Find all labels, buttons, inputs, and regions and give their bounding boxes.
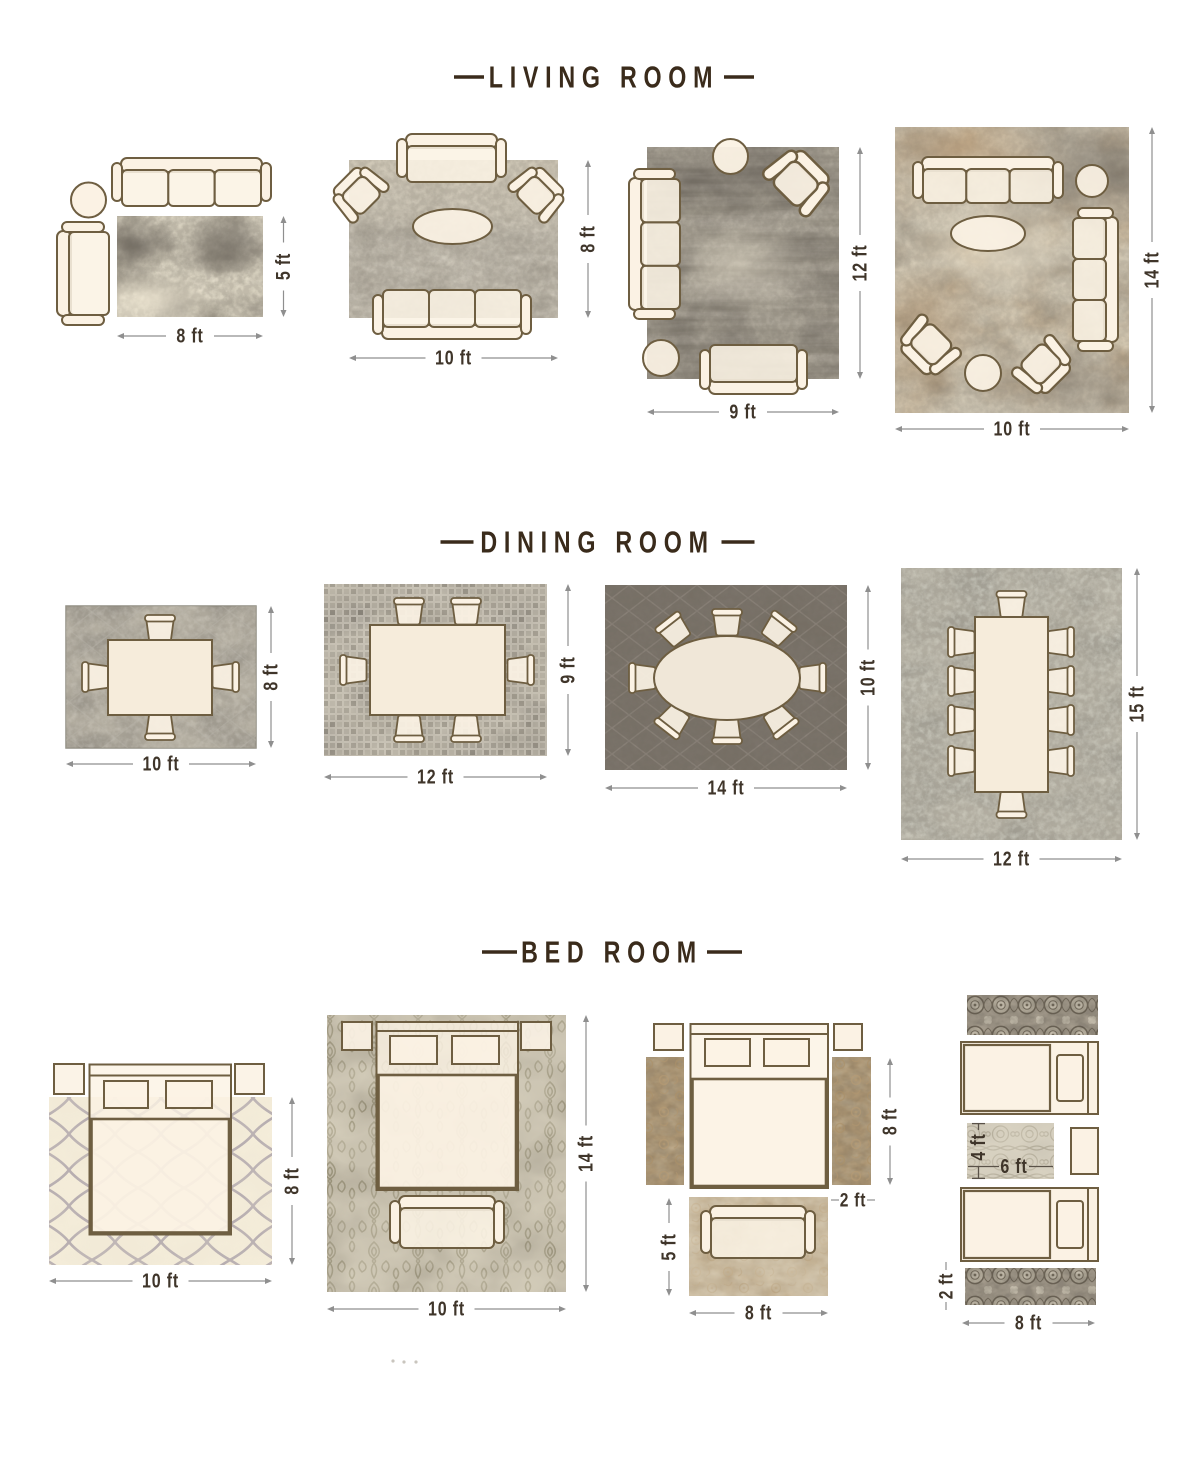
svg-text:8 ft: 8 ft <box>260 663 282 690</box>
svg-text:14 ft: 14 ft <box>575 1135 597 1172</box>
svg-text:8 ft: 8 ft <box>1015 1312 1042 1334</box>
svg-text:10 ft: 10 ft <box>143 753 180 775</box>
svg-text:8 ft: 8 ft <box>577 225 599 252</box>
svg-text:8 ft: 8 ft <box>281 1167 303 1194</box>
svg-text:5 ft: 5 ft <box>272 253 294 280</box>
svg-text:4 ft: 4 ft <box>967 1133 989 1160</box>
svg-text:LIVING ROOM: LIVING ROOM <box>489 59 719 94</box>
svg-text:2 ft: 2 ft <box>840 1189 867 1211</box>
svg-text:12 ft: 12 ft <box>849 245 871 282</box>
svg-text:10 ft: 10 ft <box>994 418 1031 440</box>
svg-text:12 ft: 12 ft <box>993 848 1030 870</box>
svg-text:2 ft: 2 ft <box>935 1273 957 1300</box>
svg-text:10 ft: 10 ft <box>142 1270 179 1292</box>
svg-text:DINING ROOM: DINING ROOM <box>480 524 714 559</box>
svg-text:5 ft: 5 ft <box>658 1233 680 1260</box>
svg-text:8 ft: 8 ft <box>879 1108 901 1135</box>
svg-text:12 ft: 12 ft <box>417 766 454 788</box>
svg-text:6 ft: 6 ft <box>1000 1155 1027 1177</box>
svg-text:8 ft: 8 ft <box>745 1302 772 1324</box>
svg-text:BED ROOM: BED ROOM <box>521 934 703 969</box>
svg-text:10 ft: 10 ft <box>857 659 879 696</box>
svg-text:8 ft: 8 ft <box>176 325 203 347</box>
svg-text:15 ft: 15 ft <box>1126 686 1148 723</box>
svg-text:9 ft: 9 ft <box>557 656 579 683</box>
svg-text:10 ft: 10 ft <box>435 347 472 369</box>
svg-text:10 ft: 10 ft <box>428 1298 465 1320</box>
svg-text:14 ft: 14 ft <box>1141 252 1163 289</box>
svg-text:9 ft: 9 ft <box>729 401 756 423</box>
svg-text:14 ft: 14 ft <box>708 777 745 799</box>
